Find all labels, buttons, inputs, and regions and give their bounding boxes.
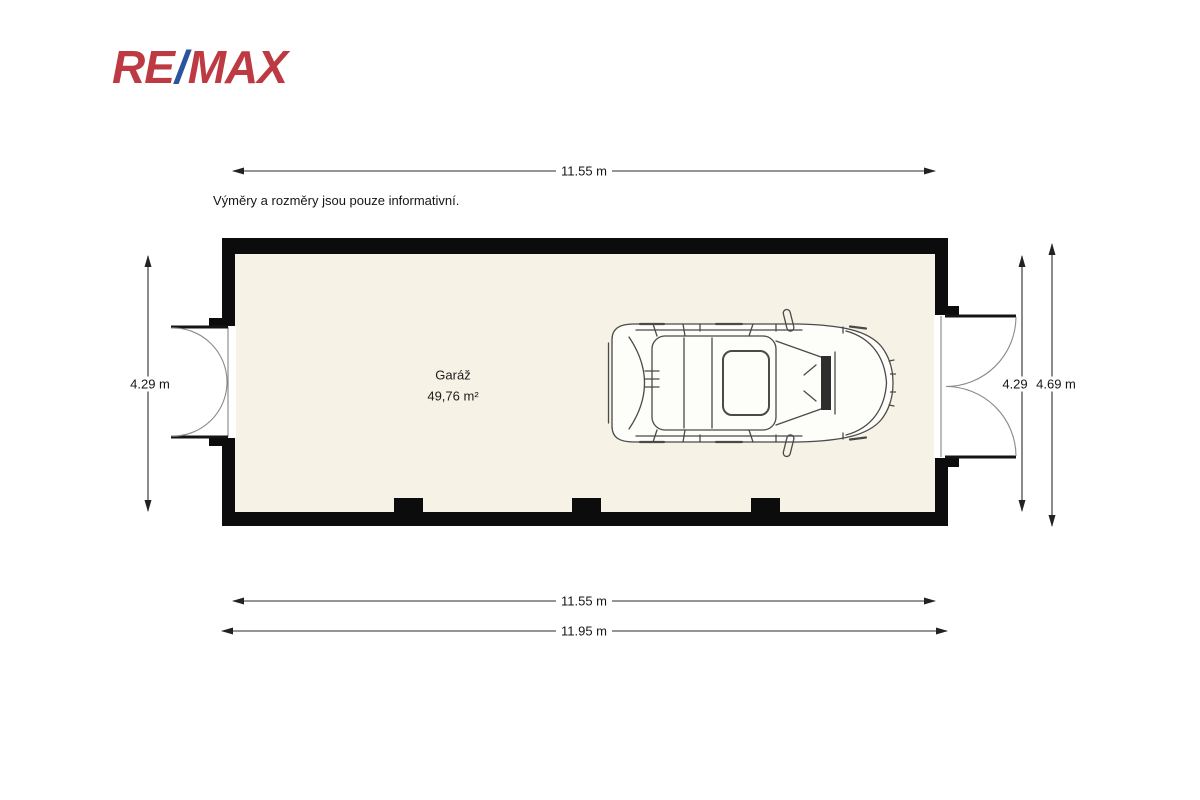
dim-label-top-width: 11.55 m	[556, 164, 612, 179]
disclaimer-text: Výměry a rozměry jsou pouze informativní…	[213, 193, 459, 208]
remax-logo: RE/MAX	[112, 44, 287, 90]
room-name: Garáž	[435, 368, 470, 383]
logo-slash: /	[174, 41, 188, 93]
wall-pillar	[394, 498, 423, 512]
door-swing-arc	[171, 382, 227, 436]
wall-pillar	[572, 498, 601, 512]
car-top-view	[609, 309, 896, 457]
floor-plan	[0, 0, 1200, 800]
door-swing-arc	[171, 328, 227, 382]
dim-label-right-outer-height: 4.69 m	[1031, 377, 1081, 392]
dim-label-left-height: 4.29 m	[125, 377, 175, 392]
left-double-door	[171, 318, 236, 446]
dim-label-right-inner-height: 4.29	[997, 377, 1032, 392]
wall-pillar	[751, 498, 780, 512]
door-swing-arc	[946, 387, 1016, 457]
logo-text-max: MAX	[188, 41, 287, 93]
dim-label-bottom-outer-width: 11.95 m	[556, 624, 612, 639]
room-area: 49,76 m²	[427, 389, 478, 404]
dim-label-bottom-inner-width: 11.55 m	[556, 594, 612, 609]
logo-text-re: RE	[112, 41, 174, 93]
